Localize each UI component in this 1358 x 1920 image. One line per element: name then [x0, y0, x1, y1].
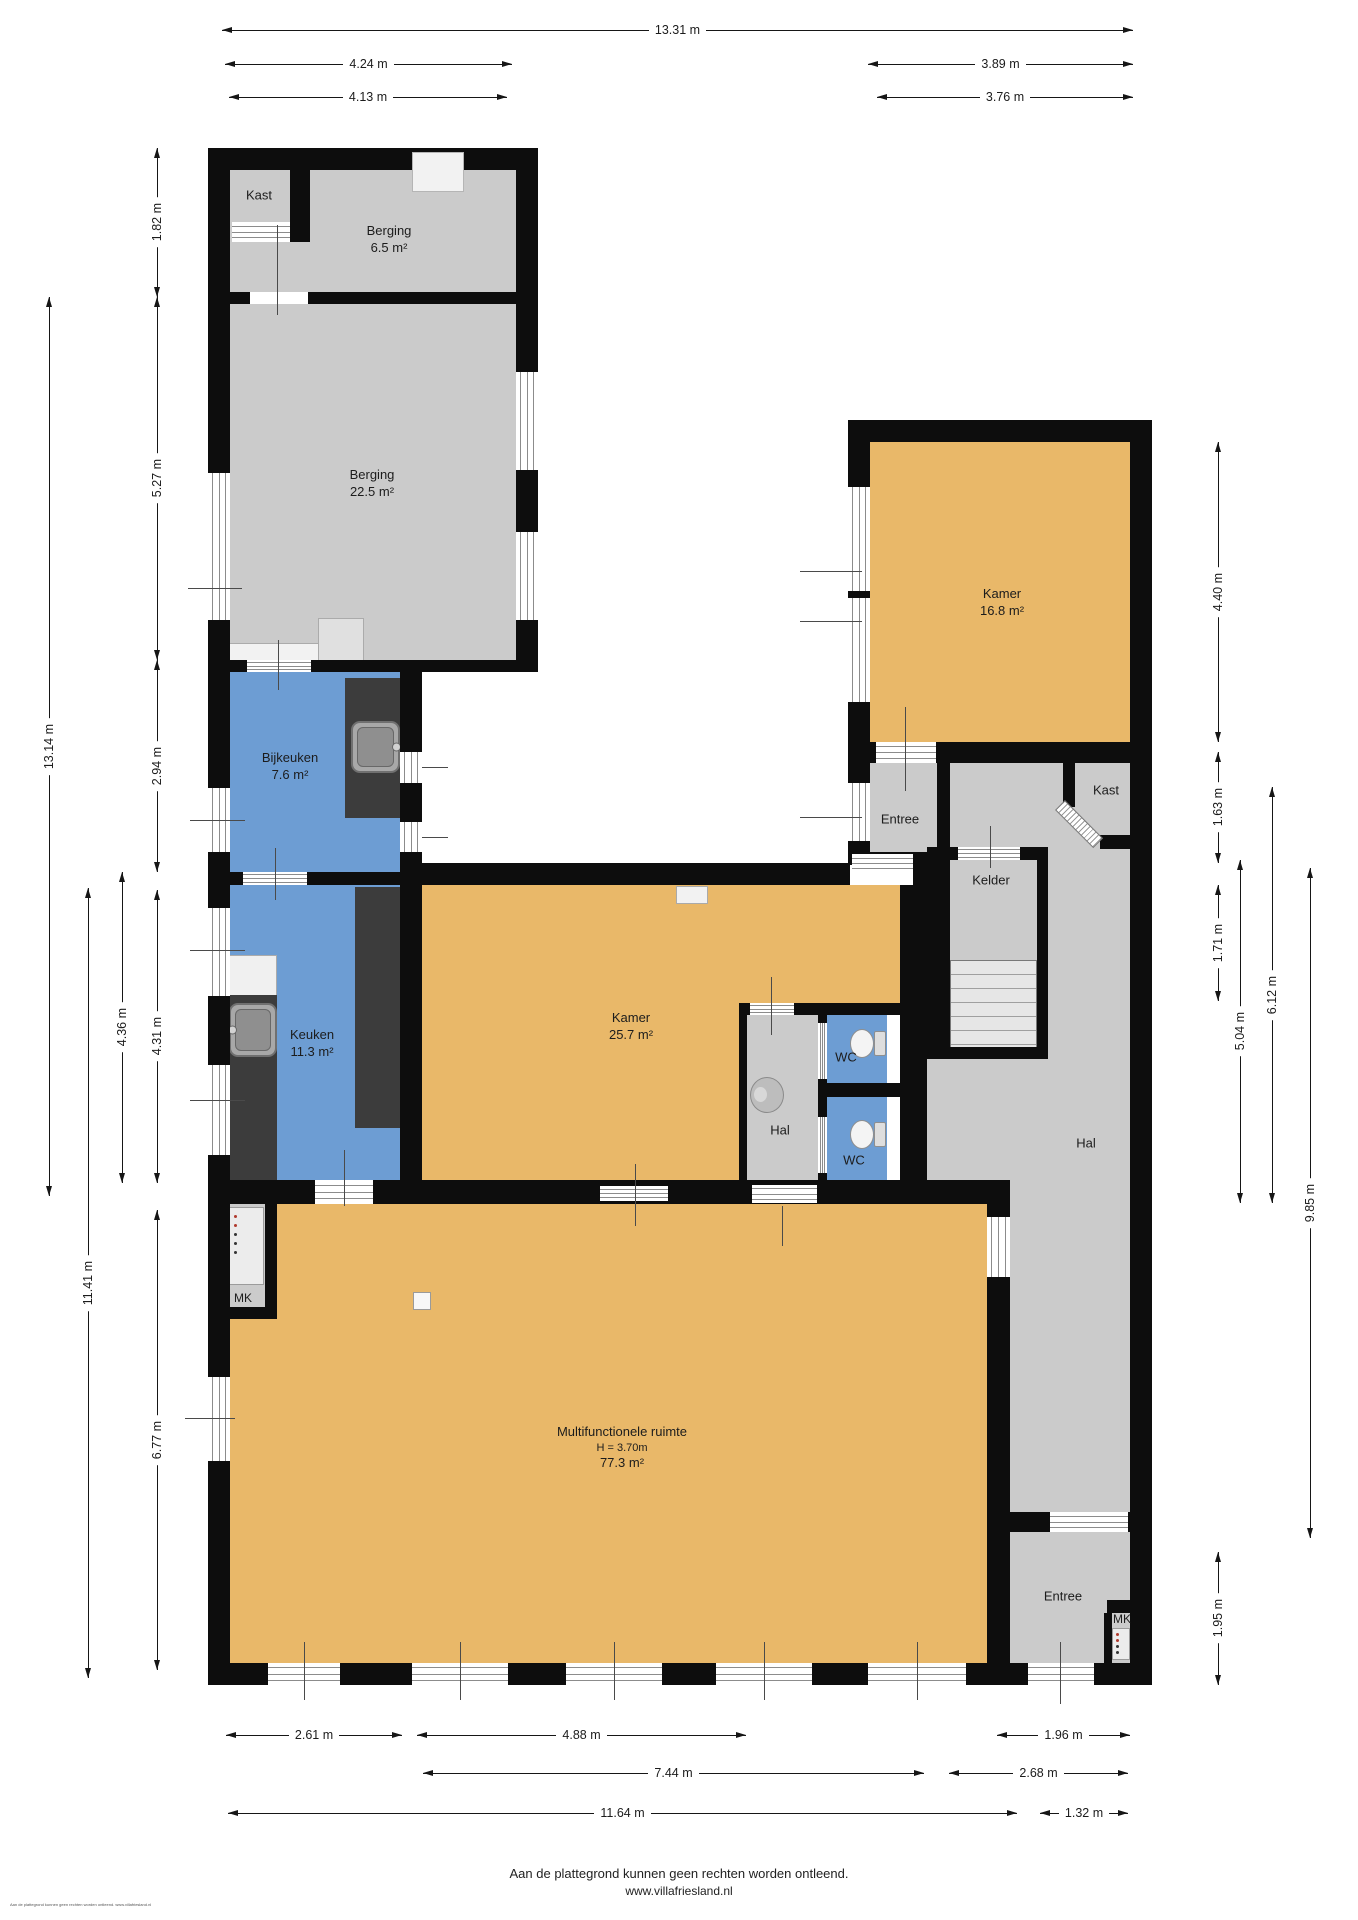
meter-panel-icon — [1112, 1628, 1130, 1660]
wall — [913, 863, 927, 885]
dimension-left-keuken: 4.31 m — [150, 890, 164, 1183]
column — [413, 1292, 431, 1310]
room-label-entree-onder: Entree — [1044, 1589, 1082, 1606]
dimension-label: 4.31 m — [150, 1011, 164, 1061]
wall — [900, 885, 927, 1182]
dimension-label: 6.12 m — [1265, 970, 1279, 1020]
door-swing-line — [277, 225, 278, 315]
room-name: WC — [843, 1153, 865, 1170]
sink-icon — [351, 721, 400, 773]
dimension-top-left-outer: 4.24 m — [225, 57, 512, 71]
room-name: Multifunctionele ruimte — [557, 1424, 687, 1441]
dimension-right-hal: 6.12 m — [1265, 787, 1279, 1203]
dimension-bottom-total: 11.64 m — [228, 1806, 1017, 1820]
wall — [848, 420, 1152, 442]
room-name: Hal — [1076, 1136, 1096, 1153]
door — [1050, 1512, 1128, 1532]
door-swing-line — [1060, 1642, 1061, 1704]
room-label-keuken: Keuken 11.3 m² — [290, 1027, 334, 1061]
room-name: WC — [835, 1050, 857, 1067]
window — [848, 598, 870, 702]
dimension-label: 11.64 m — [594, 1806, 650, 1820]
staircase — [950, 960, 1037, 1048]
window-tick-line — [304, 1642, 305, 1700]
dimension-bottom-kamer: 4.88 m — [417, 1728, 746, 1742]
wall — [1037, 847, 1048, 1057]
window — [516, 532, 538, 620]
room-name: Entree — [881, 812, 919, 829]
room-label-wc-onder: WC — [843, 1153, 865, 1170]
dimension-bottom-hal: 2.68 m — [949, 1766, 1128, 1780]
room-area: 77.3 m² — [557, 1455, 687, 1472]
door — [818, 1117, 827, 1173]
door — [818, 1023, 827, 1079]
door — [247, 660, 311, 672]
dimension-right-trap: 5.04 m — [1233, 860, 1247, 1203]
kitchen-counter — [355, 887, 400, 1128]
wall — [265, 1204, 277, 1307]
room-hal-corridor — [1048, 852, 1130, 1512]
wall — [400, 660, 538, 672]
room-label-multifunctionele-ruimte: Multifunctionele ruimte H = 3.70m 77.3 m… — [557, 1424, 687, 1472]
room-name: Bijkeuken — [262, 750, 318, 767]
room-name: MK — [234, 1291, 252, 1307]
room-name: Kelder — [972, 873, 1010, 890]
sink-icon — [229, 1003, 277, 1057]
door-swing-line — [782, 1206, 783, 1246]
dimension-label: 3.76 m — [980, 90, 1030, 104]
door — [958, 847, 1020, 860]
room-area: 6.5 m² — [367, 240, 412, 257]
dimension-label: 5.04 m — [1233, 1006, 1247, 1056]
dimension-right-kamer: 4.40 m — [1211, 442, 1225, 742]
dimension-bottom-entree-breedte: 1.32 m — [1040, 1806, 1128, 1820]
window — [848, 487, 870, 591]
door — [987, 1217, 1010, 1277]
wall-panel — [412, 152, 464, 192]
window-tick-line — [614, 1642, 615, 1700]
room-entree-boven — [870, 763, 937, 852]
door — [848, 783, 870, 841]
door-swing-line — [278, 640, 279, 690]
dimension-label: 9.85 m — [1303, 1178, 1317, 1228]
room-area: 25.7 m² — [609, 1027, 653, 1044]
dimension-bottom-entree: 1.96 m — [997, 1728, 1130, 1742]
dimension-label: 1.82 m — [150, 197, 164, 247]
window — [600, 1186, 668, 1201]
dimension-top-left-inner: 4.13 m — [229, 90, 507, 104]
window-tick-line — [771, 977, 772, 1035]
wall — [290, 168, 310, 242]
wall — [827, 1083, 905, 1097]
dimension-left-berging-groot: 5.27 m — [150, 297, 164, 660]
appliance — [225, 955, 277, 997]
dimension-left-total-onder: 11.41 m — [81, 888, 95, 1678]
room-label-meterkast-rechts: MK — [1113, 1612, 1131, 1628]
dimension-label: 1.71 m — [1211, 918, 1225, 968]
room-name: Keuken — [290, 1027, 334, 1044]
dimension-top-right-outer: 3.89 m — [868, 57, 1133, 71]
wall — [208, 148, 538, 170]
dimension-label: 11.41 m — [81, 1255, 95, 1311]
room-label-bijkeuken: Bijkeuken 7.6 m² — [262, 750, 318, 784]
dimension-bottom-mf-ruimte: 7.44 m — [423, 1766, 924, 1780]
wall — [218, 1307, 277, 1319]
window-tick-line — [635, 1164, 636, 1226]
dimension-label: 6.77 m — [150, 1415, 164, 1465]
window-tick-line — [764, 1642, 765, 1700]
room-name: Berging — [350, 467, 395, 484]
dimension-label: 2.94 m — [150, 741, 164, 791]
dimension-label: 1.95 m — [1211, 1593, 1225, 1643]
floor-plan-canvas: Kast Berging 6.5 m² Berging 22.5 m² Bijk… — [0, 0, 1358, 1920]
room-label-hal-groot: Hal — [1076, 1136, 1096, 1153]
window-tick-line — [188, 588, 242, 589]
footer-website-link: www.villafriesland.nl — [0, 1884, 1358, 1898]
dimension-right-hal-total: 9.85 m — [1303, 868, 1317, 1538]
wall — [739, 1003, 747, 1183]
window-sill — [676, 886, 708, 904]
wall — [1104, 1613, 1112, 1663]
room-name: MK — [1113, 1612, 1131, 1628]
dimension-right-kelder: 1.71 m — [1211, 885, 1225, 1001]
room-label-berging-klein: Berging 6.5 m² — [367, 223, 412, 257]
room-name: Kast — [246, 188, 272, 205]
room-area: 16.8 m² — [980, 603, 1024, 620]
room-label-wc-boven: WC — [835, 1050, 857, 1067]
door-swing-line — [275, 848, 276, 900]
dimension-label: 4.36 m — [115, 1002, 129, 1052]
dimension-label: 1.63 m — [1211, 782, 1225, 832]
dimension-top-total: 13.31 m — [222, 23, 1133, 37]
room-name: Kast — [1093, 783, 1119, 800]
window-tick-line — [422, 837, 448, 838]
cabinet — [318, 618, 364, 662]
room-name: Entree — [1044, 1589, 1082, 1606]
dimension-label: 13.14 m — [42, 718, 56, 775]
wall — [208, 1663, 1152, 1685]
room-label-kamer-rechtsboven: Kamer 16.8 m² — [980, 586, 1024, 620]
window — [400, 752, 422, 783]
window-tick-line — [190, 950, 245, 951]
dimension-left-berging-klein: 1.82 m — [150, 148, 164, 297]
door — [752, 1185, 817, 1203]
room-area: 22.5 m² — [350, 484, 395, 501]
room-area: 11.3 m² — [290, 1044, 334, 1061]
window-tick-line — [917, 1642, 918, 1700]
window — [750, 1003, 794, 1015]
window-tick-line — [800, 571, 862, 572]
dimension-label: 2.68 m — [1013, 1766, 1063, 1780]
room-area: 7.6 m² — [262, 767, 318, 784]
wall — [927, 847, 950, 1057]
dimension-label: 1.96 m — [1038, 1728, 1088, 1742]
window — [208, 1065, 230, 1155]
door-swing-line — [990, 826, 991, 868]
window — [516, 372, 538, 470]
toilet-icon — [850, 1119, 886, 1149]
door-swing-line — [905, 707, 906, 791]
window — [208, 1377, 230, 1461]
wall — [417, 863, 850, 885]
dimension-label: 4.40 m — [1211, 567, 1225, 617]
dimension-left-bijkeuken: 2.94 m — [150, 660, 164, 872]
meter-panel-icon — [228, 1207, 264, 1285]
dimension-label: 13.31 m — [649, 23, 706, 37]
room-name: Hal — [770, 1123, 790, 1140]
door-swing-line — [800, 817, 862, 818]
room-label-meterkast-links: MK — [234, 1291, 252, 1307]
dimension-label: 2.61 m — [289, 1728, 339, 1742]
room-hal-corridor2 — [1010, 1183, 1048, 1512]
window — [208, 908, 230, 996]
wall — [937, 763, 950, 852]
wall — [927, 1047, 1048, 1059]
dimension-left-keuken-buiten: 4.36 m — [115, 872, 129, 1183]
dimension-label: 4.88 m — [556, 1728, 606, 1742]
dimension-left-mf-ruimte: 6.77 m — [150, 1210, 164, 1670]
room-label-hal-klein: Hal — [770, 1123, 790, 1140]
dimension-right-entree: 1.63 m — [1211, 752, 1225, 863]
dimension-label: 3.89 m — [975, 57, 1025, 71]
dimension-label: 7.44 m — [648, 1766, 698, 1780]
footer-small-print: Aan de plattegrond kunnen geen rechten w… — [10, 1902, 151, 1907]
window — [208, 473, 230, 620]
room-label-berging-groot: Berging 22.5 m² — [350, 467, 395, 501]
window-tick-line — [185, 1418, 235, 1419]
room-hal-breed — [927, 1059, 1048, 1183]
dimension-label: 1.32 m — [1059, 1806, 1109, 1820]
wall — [1130, 420, 1152, 1685]
wall — [1100, 835, 1130, 849]
window-tick-line — [190, 1100, 245, 1101]
window-tick-line — [800, 621, 862, 622]
door — [232, 222, 290, 242]
wall — [208, 872, 422, 885]
dimension-bottom-keuken: 2.61 m — [226, 1728, 402, 1742]
door — [876, 742, 936, 763]
door-opening — [250, 292, 308, 304]
dimension-label: 5.27 m — [150, 453, 164, 503]
room-ceiling-height: H = 3.70m — [557, 1441, 687, 1455]
dimension-top-right-inner: 3.76 m — [877, 90, 1133, 104]
dimension-right-entree-onder: 1.95 m — [1211, 1552, 1225, 1685]
window-tick-line — [460, 1642, 461, 1700]
room-name: Kamer — [609, 1010, 653, 1027]
room-label-kast-rechts: Kast — [1093, 783, 1119, 800]
door-swing-line — [344, 1150, 345, 1206]
room-label-kelder: Kelder — [972, 873, 1010, 890]
dimension-left-total-boven: 13.14 m — [42, 297, 56, 1196]
dimension-label: 4.13 m — [343, 90, 393, 104]
door — [1028, 1663, 1094, 1685]
dimension-label: 4.24 m — [343, 57, 393, 71]
door — [852, 854, 913, 873]
window — [400, 822, 422, 852]
room-label-entree-boven: Entree — [881, 812, 919, 829]
washbasin-icon — [750, 1077, 784, 1113]
room-name: Berging — [367, 223, 412, 240]
room-label-kast-boven: Kast — [246, 188, 272, 205]
window-tick-line — [190, 820, 245, 821]
room-name: Kamer — [980, 586, 1024, 603]
footer-disclaimer: Aan de plattegrond kunnen geen rechten w… — [0, 1866, 1358, 1881]
window-tick-line — [422, 767, 448, 768]
room-label-kamer-midden: Kamer 25.7 m² — [609, 1010, 653, 1044]
wall — [1107, 1600, 1135, 1613]
